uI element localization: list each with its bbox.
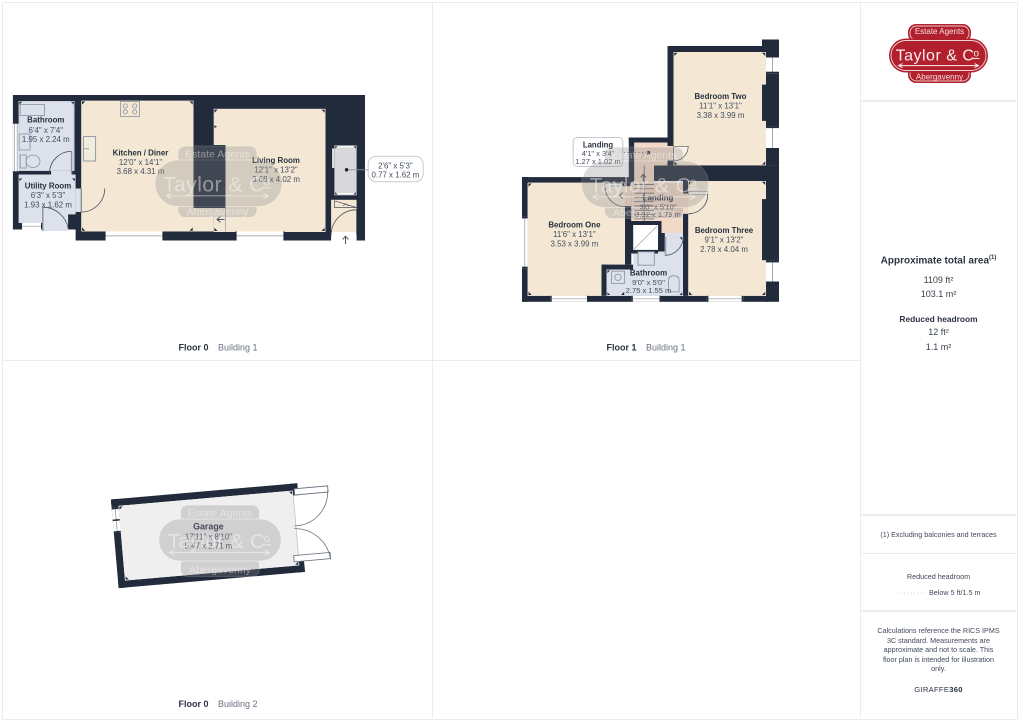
svg-text:Floor 1 Building 1: Floor 1 Building 1 [606,343,685,353]
svg-text:0.77 x 1.62 m: 0.77 x 1.62 m [371,171,419,180]
svg-text:2.78 x 4.04 m: 2.78 x 4.04 m [700,245,748,254]
svg-text:1.93 x 1.62 m: 1.93 x 1.62 m [24,201,72,210]
svg-text:2'6" x 5'3": 2'6" x 5'3" [378,161,413,170]
svg-text:12'0" x 14'1": 12'0" x 14'1" [119,158,162,167]
svg-text:6'4" x 7'4": 6'4" x 7'4" [29,126,64,135]
svg-text:Bedroom Three: Bedroom Three [695,226,754,235]
svg-text:Bedroom One: Bedroom One [548,221,601,230]
svg-text:Taylor & C: Taylor & C [590,175,692,198]
svg-text:Abergavenny: Abergavenny [916,73,963,82]
svg-text:Taylor & C: Taylor & C [163,174,265,197]
svg-text:o: o [263,175,270,189]
svg-text:Kitchen / Diner: Kitchen / Diner [113,148,169,157]
svg-text:Estate Agents: Estate Agents [915,27,964,36]
svg-text:Abergavenny: Abergavenny [189,564,252,576]
svg-text:11'1" x 13'1": 11'1" x 13'1" [699,102,742,111]
svg-text:Estate Agents: Estate Agents [185,149,250,161]
svg-text:Estate Agents: Estate Agents [188,508,253,520]
svg-text:1.95 x 2.24 m: 1.95 x 2.24 m [22,135,70,144]
svg-text:o: o [974,49,980,60]
svg-text:Bathroom: Bathroom [630,269,667,278]
svg-text:Bedroom Two: Bedroom Two [694,92,746,101]
svg-text:Abergavenny: Abergavenny [613,207,676,219]
svg-text:o: o [690,176,697,190]
svg-text:Taylor & C: Taylor & C [168,531,265,553]
svg-text:11'6" x 13'1": 11'6" x 13'1" [553,230,596,239]
svg-text:Abergavenny: Abergavenny [187,206,250,218]
svg-text:Floor 0 Building 1: Floor 0 Building 1 [178,342,257,352]
svg-text:3.38 x 3.99 m: 3.38 x 3.99 m [697,111,745,120]
svg-text:Estate Agents: Estate Agents [612,150,677,162]
svg-text:6'3" x 5'3": 6'3" x 5'3" [31,191,66,200]
svg-text:Floor 0 Building 2: Floor 0 Building 2 [178,699,257,709]
svg-text:o: o [264,532,271,546]
svg-text:2.75 x 1.55 m: 2.75 x 1.55 m [626,286,671,295]
svg-text:9'1" x 13'2": 9'1" x 13'2" [705,235,744,244]
svg-text:Taylor & C: Taylor & C [896,48,975,65]
svg-text:Utility Room: Utility Room [25,182,71,191]
svg-text:Bathroom: Bathroom [27,116,64,125]
svg-text:3.53 x 3.99 m: 3.53 x 3.99 m [550,240,598,249]
